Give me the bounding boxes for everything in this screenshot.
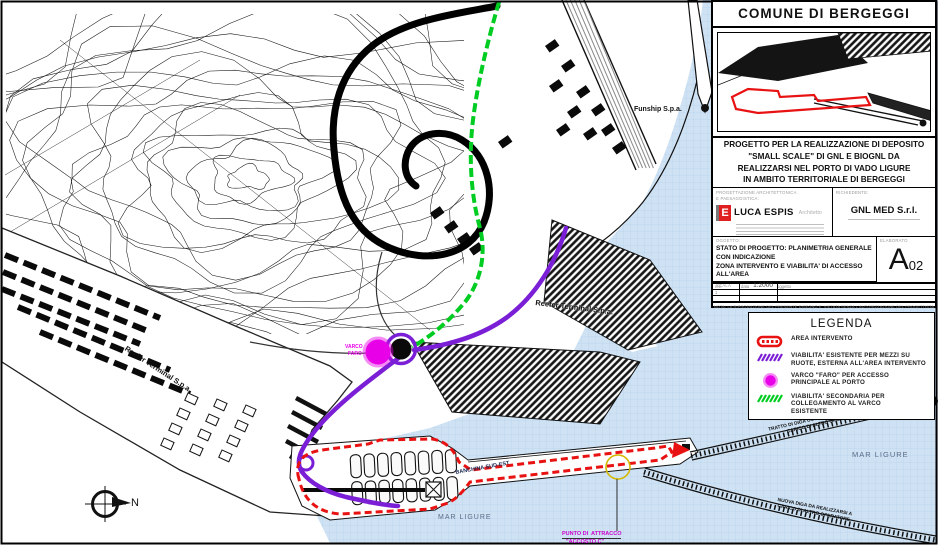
subject-row: OGGETTO: STATO DI PROGETTO: PLANIMETRIA … (713, 237, 935, 284)
sheet-cell: ELABORATO A02 (877, 237, 935, 282)
drawing-canvas: Funship S.p.a. Reefer Terminal S.p.a. Re… (0, 0, 938, 546)
sheet-code: A02 (880, 246, 932, 273)
legend-item-varco-faro: VARCO "FARO" PER ACCESSO PRINCIPALE AL P… (755, 372, 928, 389)
legend-box: LEGENDA AREA INTERVENTO VIABILITA' ESIST… (748, 312, 935, 420)
roundabout (391, 339, 412, 360)
sheet-letter: A (889, 246, 909, 273)
legend-item-viabilita-esistente: VIABILITA' ESISTENTE PER MEZZI SU RUOTE,… (755, 352, 928, 368)
parties-row: PROGETTAZIONE ARCHITETTONICA E PAESAGGIS… (713, 188, 935, 237)
client-caption: RICHIEDENTE: (836, 190, 932, 196)
subject-cell: OGGETTO: STATO DI PROGETTO: PLANIMETRIA … (713, 237, 876, 282)
client-cell: RICHIEDENTE: GNL MED S.r.l. (833, 188, 935, 236)
oggetto-header: oggetto (777, 284, 791, 289)
inset-map-drawing (718, 33, 931, 131)
legend-label: AREA INTERVENTO (791, 335, 853, 343)
flare-unit (426, 482, 441, 497)
red-dashed-area-icon (755, 335, 785, 348)
copyright-note: NOTA: LA RIPRODUZIONE DEL PRESENTE DISEG… (713, 302, 935, 310)
label-north: N (131, 497, 139, 509)
designer-role: Architetto (799, 210, 822, 216)
legend-item-viabilita-secondaria: VIABILITA' SECONDARIA PER COLLEGAMENTO A… (755, 393, 928, 416)
revision-table: rev. data oggetto 1 NOTA: LA RIPRODUZION… (713, 284, 935, 313)
designer-name: LUCA ESPIS (734, 207, 794, 218)
designer-caption: PROGETTAZIONE ARCHITETTONICA E PAESAGGIS… (716, 190, 829, 202)
client-address-line (848, 219, 920, 221)
subject-text: STATO DI PROGETTO: PLANIMETRIA GENERALE … (716, 245, 873, 281)
inset-map (717, 32, 931, 132)
designer-cell: PROGETTAZIONE ARCHITETTONICA E PAESAGGIS… (713, 188, 833, 236)
project-title: PROGETTO PER LA REALIZZAZIONE DI DEPOSIT… (713, 138, 935, 188)
client-name: GNL MED S.r.l. (836, 205, 932, 216)
magenta-circle-icon (755, 372, 785, 389)
label-mar-ligure-bottom: MAR LIGURE (438, 514, 492, 521)
designer-address-lines (736, 224, 824, 237)
label-varco-line1: VARCO (345, 344, 363, 351)
legend-label: VIABILITA' ESISTENTE PER MEZZI SU RUOTE,… (791, 352, 926, 368)
legend-label: VARCO "FARO" PER ACCESSO PRINCIPALE AL P… (791, 372, 889, 388)
designer-logo: E (716, 205, 731, 221)
highway (562, 0, 656, 170)
purple-dashed-line-icon (755, 352, 785, 363)
terminal-yard-south (412, 342, 640, 424)
label-varco-line2: FARO (348, 351, 362, 358)
label-punto-attracco: PUNTO DI ATTRACCO (562, 531, 621, 539)
varco-faro-marker (366, 340, 391, 365)
rev-header: rev. (713, 284, 739, 289)
subject-caption: OGGETTO: (716, 238, 873, 244)
legend-label: VIABILITA' SECONDARIA PER COLLEGAMENTO A… (791, 393, 885, 416)
rev-value: 1 (713, 290, 739, 295)
label-accosto-c: "ACCOSTO C" (566, 539, 604, 545)
legend-title: LEGENDA (755, 318, 928, 330)
title-block: COMUNE DI BERGEGGI PROGETTO PER LA REALI… (711, 0, 937, 308)
sheet-number: 02 (909, 259, 923, 273)
legend-item-area-intervento: AREA INTERVENTO (755, 335, 928, 348)
inset-map-cell (713, 28, 935, 138)
viabilita-esistente-route-upper (414, 228, 566, 350)
data-header: data (739, 284, 777, 289)
north-compass (85, 486, 131, 522)
green-dashed-line-icon (755, 393, 785, 404)
label-mar-ligure-right: MAR LIGURE (852, 450, 909, 459)
label-funship: Funship S.p.a. (634, 106, 682, 113)
municipality-title: COMUNE DI BERGEGGI (713, 2, 935, 28)
north-pier-head (701, 104, 709, 112)
